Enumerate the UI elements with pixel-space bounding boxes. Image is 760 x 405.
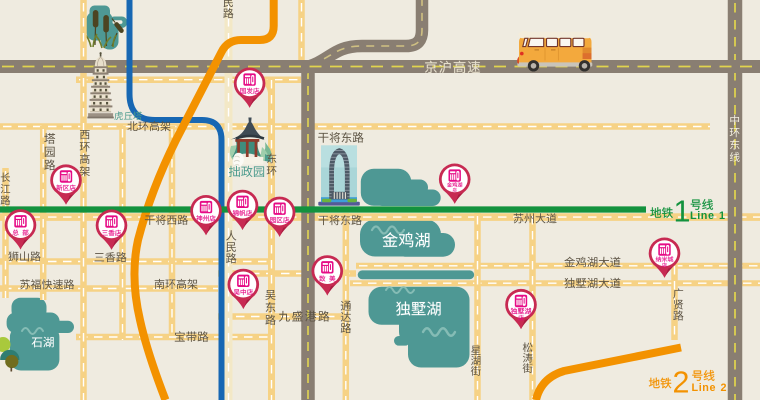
svg-text:1: 1 [674,195,691,229]
svg-text:Line: Line [690,210,715,222]
svg-text:Line: Line [692,382,717,394]
svg-text:2: 2 [721,382,727,394]
svg-text:2: 2 [673,366,690,400]
svg-text:1: 1 [719,210,725,222]
